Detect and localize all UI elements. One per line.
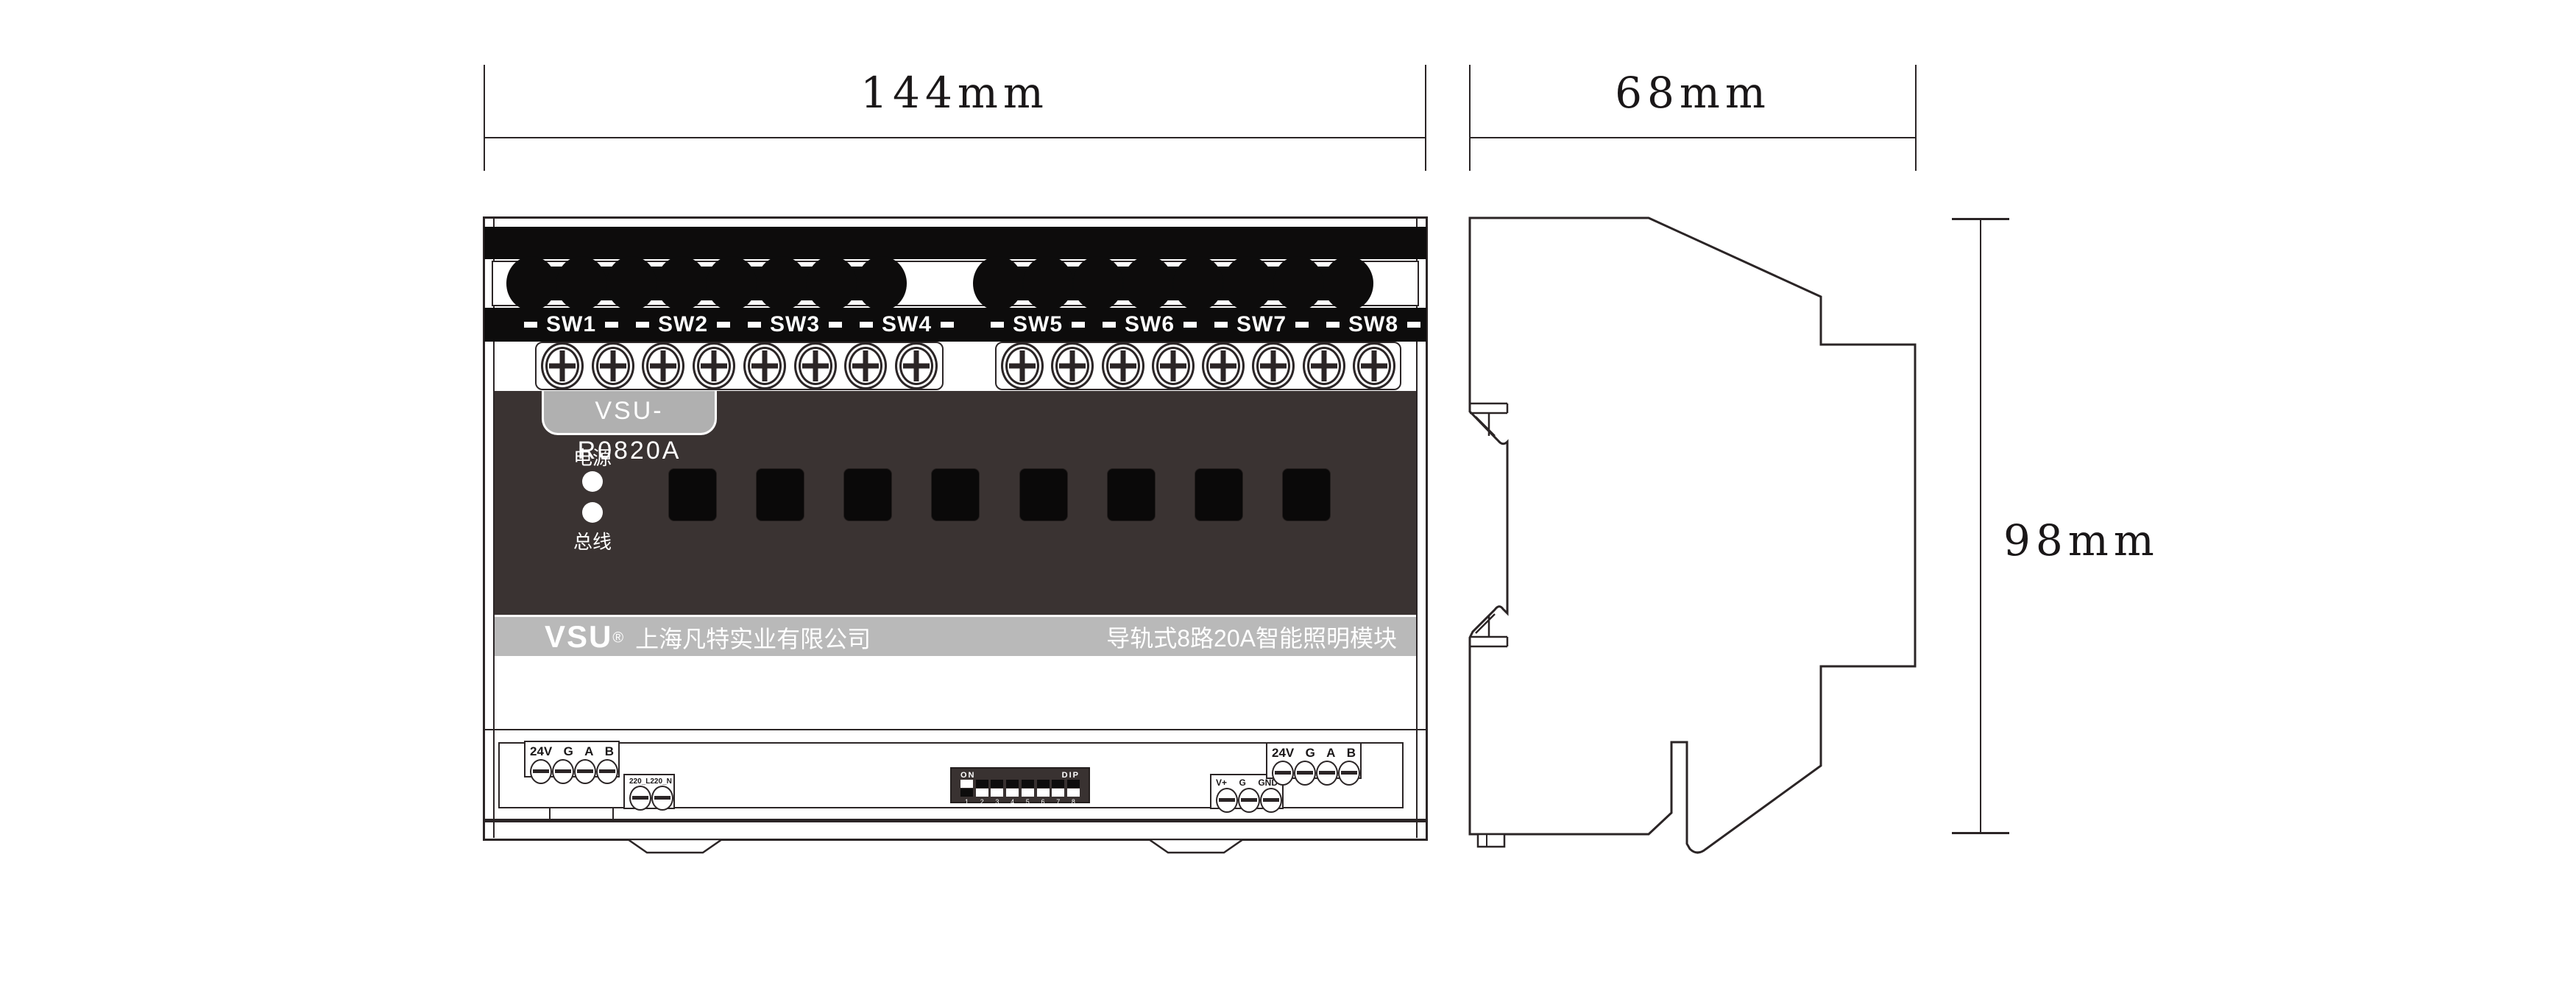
terminal-labels: V+ G GND (1216, 777, 1278, 788)
wire-slot-bump (1273, 256, 1323, 311)
slotted-screw (1260, 788, 1282, 813)
dip-switch-4: 4 (1006, 780, 1019, 805)
left-bus-terminal-block: 24V G A B (524, 741, 620, 777)
mounting-foot (1148, 839, 1244, 854)
channel-button (1195, 468, 1243, 521)
sw-channel-label: SW8 (1317, 312, 1429, 337)
terminal-label: 24V (530, 744, 552, 759)
terminal-screws (1216, 788, 1278, 813)
channel-button (756, 468, 804, 521)
terminal-label: B (605, 744, 614, 759)
bottom-left-tab (549, 807, 614, 820)
dip-switch-7: 7 (1052, 780, 1064, 805)
dip-number: 7 (1056, 798, 1060, 805)
terminal-labels: 220_L 220_N (629, 777, 669, 786)
phillips-screw (592, 342, 634, 389)
slotted-screw (651, 786, 673, 811)
sw-label-text: SW8 (1348, 312, 1398, 337)
phillips-screw (1001, 342, 1044, 389)
terminal-label: B (1347, 746, 1356, 761)
dim-text-front-width: 144mm (822, 68, 1087, 118)
dip-number: 4 (1011, 798, 1014, 805)
wire-slot-bump (807, 256, 857, 311)
dim-ext-line (1425, 65, 1426, 171)
terminal-label: G (1306, 746, 1315, 761)
channel-button (668, 468, 717, 521)
terminal-labels: 24V G A B (530, 744, 614, 759)
dim-text-side-width: 68mm (1575, 68, 1811, 118)
wire-slot-bump (1223, 256, 1273, 311)
product-name: 导轨式8路20A智能照明模块 (1106, 620, 1397, 654)
wire-entry-group-2 (973, 256, 1370, 311)
dip-cell (1067, 780, 1080, 788)
wire-entry-group-1 (506, 256, 904, 311)
sw-channel-label: SW5 (982, 312, 1094, 337)
phillips-screw (1152, 342, 1195, 389)
dim-text-height: 98mm (2003, 515, 2239, 565)
company-name: 上海凡特实业有限公司 (635, 626, 871, 652)
dip-cell (1037, 780, 1050, 788)
mounting-foot (627, 839, 723, 854)
dip-switch-2: 2 (976, 780, 988, 805)
wire-slot-bump (973, 256, 1023, 311)
slotted-screw (1316, 761, 1338, 786)
dip-cell (976, 789, 988, 797)
slotted-screw (530, 759, 552, 784)
sw-labels-group-2: SW5 SW6 SW7 SW8 (982, 308, 1401, 342)
dip-header: ON DIP (960, 771, 1080, 780)
terminal-labels: 24V G A B (1272, 746, 1356, 761)
side-view-outline (1470, 218, 1915, 853)
slotted-screw (574, 759, 596, 784)
sw-channel-label: SW1 (515, 312, 627, 337)
dip-switch-row: 1 2 3 4 5 6 7 8 (960, 780, 1080, 805)
sw-channel-label: SW3 (739, 312, 851, 337)
dip-cell (1052, 789, 1064, 797)
brand-logo: VSU (545, 619, 612, 654)
dip-cell (1052, 780, 1064, 788)
dip-switch-3: 3 (991, 780, 1003, 805)
phillips-screw (642, 342, 684, 389)
bottom-seam-line (484, 819, 1426, 822)
power-led (582, 471, 603, 492)
terminal-label: A (1326, 746, 1335, 761)
wire-slot-bump (1023, 256, 1073, 311)
wire-slot-bump (506, 256, 556, 311)
dim-line-68 (1470, 137, 1916, 138)
wire-slot-bump (1123, 256, 1173, 311)
sw-channel-label: SW7 (1206, 312, 1317, 337)
phillips-screw (895, 342, 938, 389)
sw-label-text: SW6 (1125, 312, 1175, 337)
lower-step-line (484, 729, 1426, 730)
right-bus-terminal-block: 24V G A B (1266, 742, 1362, 779)
wire-slot-bump (556, 256, 606, 311)
phillips-screw (1102, 342, 1144, 389)
dip-name-label: DIP (1062, 771, 1080, 780)
power-led-label: 电源 (556, 443, 629, 470)
dip-number: 5 (1026, 798, 1030, 805)
terminal-screws (629, 786, 669, 811)
slotted-screw (1272, 761, 1294, 786)
dip-number: 1 (965, 798, 969, 805)
phillips-screw (1252, 342, 1295, 389)
sw-label-text: SW1 (546, 312, 596, 337)
bus-led-label: 总线 (556, 527, 629, 554)
phillips-screw (1051, 342, 1094, 389)
wire-slot-bump (1173, 256, 1223, 311)
dip-cell (1037, 789, 1050, 797)
bus-led (582, 502, 603, 523)
dip-cell (1067, 789, 1080, 797)
sw-labels-group-1: SW1 SW2 SW3 SW4 (515, 308, 935, 342)
dip-switch-8: 8 (1067, 780, 1080, 805)
brand-left: VSU®上海凡特实业有限公司 (545, 619, 871, 655)
terminal-screws (1272, 761, 1356, 786)
channel-button (843, 468, 892, 521)
wire-slot-bump (657, 256, 707, 311)
channel-button-row (668, 468, 1331, 520)
channel-button (1107, 468, 1156, 521)
sw-label-text: SW2 (658, 312, 708, 337)
wire-slot-bump (857, 256, 907, 311)
dip-cell (1006, 789, 1019, 797)
slotted-screw (596, 759, 618, 784)
phillips-screw (541, 342, 584, 389)
dim-ext-line (484, 65, 485, 171)
sw-label-text: SW3 (770, 312, 820, 337)
terminal-label: 220_N (650, 777, 671, 786)
dip-number: 2 (980, 798, 984, 805)
phillips-screw (844, 342, 887, 389)
slotted-screw (629, 786, 651, 811)
dip-number: 6 (1041, 798, 1045, 805)
sw-channel-label: SW2 (627, 312, 739, 337)
slotted-screw (552, 759, 574, 784)
sw-label-text: SW5 (1013, 312, 1063, 337)
dip-cell (1022, 780, 1034, 788)
phillips-screw (794, 342, 837, 389)
top-cover-bar (484, 227, 1426, 259)
slotted-screw (1338, 761, 1360, 786)
technical-drawing: 144mm 68mm 98mm SW1 SW2 SW3 SW4 SW5 SW6 … (0, 0, 2576, 1005)
dip-switch-block: ON DIP 1 2 3 4 5 6 7 8 (950, 767, 1090, 803)
slotted-screw (1238, 788, 1260, 813)
terminal-screws (530, 759, 614, 784)
dip-cell (991, 780, 1003, 788)
wire-slot-bump (707, 256, 757, 311)
terminal-label: G (1239, 777, 1246, 788)
slotted-screw (1294, 761, 1316, 786)
dip-switch-6: 6 (1037, 780, 1050, 805)
terminal-label: G (564, 744, 573, 759)
model-tab: VSU-R0820A (542, 391, 717, 435)
terminal-label: V+ (1216, 777, 1227, 788)
sw-channel-label: SW6 (1094, 312, 1206, 337)
dip-cell (976, 780, 988, 788)
dip-cell (1022, 789, 1034, 797)
dip-cell (1006, 780, 1019, 788)
dip-on-label: ON (960, 771, 976, 780)
mains-terminal-block: 220_L 220_N (623, 774, 675, 809)
phillips-screw (1303, 342, 1345, 389)
dip-number: 8 (1072, 798, 1075, 805)
dip-switch-1: 1 (960, 780, 973, 805)
terminal-label: A (584, 744, 593, 759)
phillips-screw (743, 342, 786, 389)
channel-button (1019, 468, 1068, 521)
wire-slot-bump (606, 256, 657, 311)
wire-slot-bump (1073, 256, 1123, 311)
phillips-screw (1353, 342, 1395, 389)
registered-mark: ® (612, 630, 623, 646)
dip-switch-5: 5 (1022, 780, 1034, 805)
phillips-screw (693, 342, 735, 389)
screw-terminal-group-1 (535, 342, 944, 390)
screw-terminal-group-2 (995, 342, 1401, 390)
dim-ext-line (1469, 65, 1471, 171)
phillips-screw (1202, 342, 1245, 389)
sw-label-text: SW4 (882, 312, 932, 337)
dip-number: 3 (995, 798, 999, 805)
channel-button (1282, 468, 1331, 521)
brand-band: VSU®上海凡特实业有限公司 导轨式8路20A智能照明模块 (495, 617, 1416, 656)
side-view (1461, 206, 1991, 869)
sw-channel-label: SW4 (851, 312, 963, 337)
dip-cell (960, 780, 973, 788)
wire-slot-bump (757, 256, 807, 311)
sw-label-text: SW7 (1236, 312, 1287, 337)
terminal-label: 24V (1272, 746, 1294, 761)
slotted-screw (1216, 788, 1238, 813)
dim-ext-line (1915, 65, 1917, 171)
dim-line-144 (484, 137, 1426, 138)
channel-button (931, 468, 980, 521)
wire-slot-bump (1323, 256, 1373, 311)
dip-cell (960, 789, 973, 797)
side-mounting-foot (1478, 834, 1504, 847)
terminal-label: 220_L (629, 777, 650, 786)
dip-cell (991, 789, 1003, 797)
